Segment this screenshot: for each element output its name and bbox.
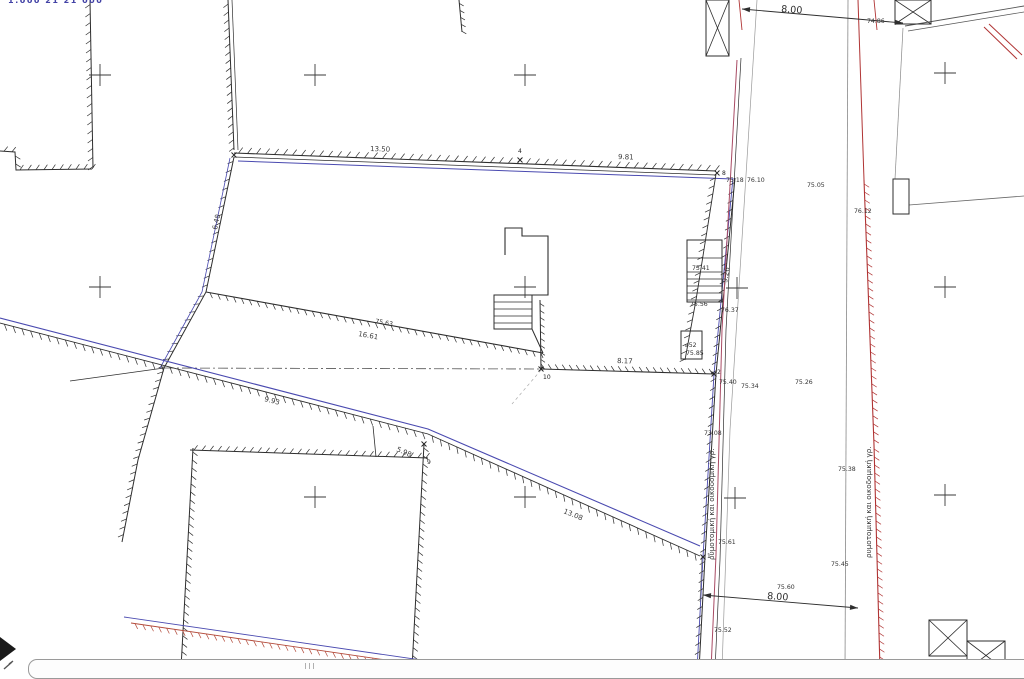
hatch-tick [354, 451, 358, 456]
hatch-tick [877, 561, 882, 564]
hatch-tick [868, 288, 873, 291]
hatch-tick [223, 4, 228, 8]
hatch-tick [222, 636, 225, 641]
hatch-tick [632, 367, 635, 372]
hatch-tick [598, 161, 602, 167]
hatch-tick [189, 516, 194, 520]
hatch-tick [877, 553, 882, 556]
hatch-tick [414, 640, 419, 644]
hatch-tick [540, 331, 544, 334]
hatch-tick [325, 651, 328, 656]
hatch-tick [621, 521, 622, 528]
roadside-structure [893, 179, 909, 214]
hatch-tick [695, 554, 696, 561]
hatch-tick [625, 162, 629, 168]
hatch-tick [715, 165, 719, 171]
hatch-tick [878, 585, 883, 588]
hatch-tick [159, 627, 162, 632]
hatch-tick [871, 368, 876, 371]
hatch-tick [457, 447, 458, 454]
hatch-tick [364, 152, 368, 158]
hatch-tick [877, 569, 882, 572]
hatch-tick [190, 500, 195, 504]
hatch-tick [867, 248, 872, 251]
hatch-tick [879, 617, 884, 620]
horizontal-scrollbar[interactable] [28, 659, 1024, 679]
hatch-tick [418, 453, 422, 458]
hatch-tick [490, 157, 494, 163]
hatch-tick [597, 366, 600, 371]
hatch-tick [870, 328, 875, 331]
elevation-label: 75.45 [831, 561, 849, 568]
dimension-label: 9.93 [264, 395, 281, 407]
hatch-tick [188, 532, 193, 536]
hatch-tick [314, 449, 318, 454]
hatch-tick [875, 465, 880, 468]
dimension-label: 13.50 [370, 145, 390, 154]
hatch-tick [175, 629, 178, 634]
hatch-tick [879, 641, 884, 644]
hatch-tick [87, 121, 92, 125]
hatch-tick [553, 159, 557, 165]
hatch-tick [400, 154, 404, 160]
hatch-tick [227, 84, 232, 88]
hatch-tick [535, 159, 539, 165]
hatch-tick [309, 649, 312, 654]
hatch-tick [872, 392, 877, 395]
hatch-tick [670, 164, 674, 170]
hatch-tick [607, 161, 611, 167]
east-parcel-line [909, 196, 1024, 205]
west-spur [70, 368, 164, 381]
road-width-label: 8.00 [781, 4, 803, 16]
hatch-tick [44, 165, 47, 170]
hatch-tick [386, 452, 390, 457]
hatch-tick [865, 200, 870, 203]
hatch-tick [876, 529, 881, 532]
hatch-tick [670, 543, 671, 550]
hatch-tick [421, 504, 426, 508]
hatch-tick [28, 165, 31, 170]
topleft-step-line-hatch [4, 147, 95, 170]
hatch-tick [86, 31, 91, 35]
hatch-tick [424, 448, 429, 452]
site-plan-drawing: 13.509.816.409.2616.618.179.935.9813.088… [0, 0, 1024, 670]
hatch-tick [270, 643, 273, 648]
grid-cross-icon [934, 62, 956, 84]
hatch-tick [508, 158, 512, 164]
hatch-tick [873, 408, 878, 411]
elevation-label: 75.60 [777, 584, 795, 591]
hatch-tick [877, 545, 882, 548]
hatch-tick [867, 256, 872, 259]
hatch-tick [333, 652, 336, 657]
hatch-tick [306, 449, 310, 454]
hatch-tick [370, 451, 374, 456]
scrollbar-grip[interactable] [305, 663, 306, 669]
hatch-tick [193, 452, 198, 456]
hatch-tick [562, 365, 565, 370]
hatch-tick [194, 445, 198, 450]
elevation-label: ⌀52 [685, 342, 697, 349]
hatch-tick [378, 452, 382, 457]
hatch-tick [422, 480, 427, 484]
survey-point-marker [715, 171, 720, 176]
hatch-tick [472, 156, 476, 162]
hatch-tick [418, 552, 423, 556]
hatch-tick [265, 149, 269, 155]
hatch-tick [185, 604, 190, 608]
lower-vert-line-a [181, 448, 193, 668]
hatch-tick [86, 40, 91, 44]
hatch-tick [572, 498, 573, 505]
street-name-label: ρυμοτομική και οικοδομική γρ. [707, 448, 716, 560]
hatch-tick [427, 155, 431, 161]
hatch-tick [224, 28, 229, 32]
hatch-tick [498, 465, 499, 472]
lower-vert-line-a-hatch [181, 452, 197, 670]
hatch-tick [189, 524, 194, 528]
hatch-tick [254, 641, 257, 646]
hatch-tick [317, 650, 320, 655]
hatch-tick [637, 528, 638, 535]
hatch-tick [878, 593, 883, 596]
hatch-tick [660, 368, 663, 373]
hatch-tick [229, 148, 234, 152]
hatch-tick [60, 164, 63, 169]
hatch-tick [182, 652, 187, 656]
elevation-label: 76.12 [854, 208, 872, 215]
south-diagonal-hatched [0, 323, 700, 556]
hatch-tick [876, 513, 881, 516]
hatch-tick [688, 368, 691, 373]
hatch-tick [246, 640, 249, 645]
hatch-tick [419, 544, 424, 548]
hatch-tick [667, 368, 670, 373]
hatch-tick [210, 446, 214, 451]
hatch-tick [679, 164, 683, 170]
hatch-tick [548, 364, 551, 369]
dash-dot-line [164, 368, 540, 369]
hatch-tick [866, 232, 871, 235]
hatch-tick [176, 335, 182, 336]
hatch-tick [228, 108, 233, 112]
hatch-tick [87, 103, 92, 107]
hatch-tick [874, 457, 879, 460]
top-right-red-2 [989, 24, 1022, 55]
hatch-tick [872, 384, 877, 387]
hatch-tick [869, 320, 874, 323]
elevation-label: 75.18 [726, 177, 744, 184]
street-name-label: ρυμοτομική και οικοδομική γρ. [864, 446, 873, 558]
hatch-tick [432, 436, 433, 443]
hatch-tick [290, 449, 294, 454]
hatch-tick [417, 568, 422, 572]
hatch-tick [346, 450, 350, 455]
hatch-tick [218, 446, 222, 451]
hatch-tick [283, 149, 287, 155]
hatch-tick [226, 60, 231, 64]
hatch-tick [87, 85, 92, 89]
hatch-tick [198, 633, 201, 638]
hatch-tick [341, 653, 344, 658]
hatch-tick [319, 151, 323, 157]
hatch-tick [224, 12, 229, 16]
dimension-label: 8.17 [617, 357, 633, 366]
hatch-tick [163, 359, 169, 360]
hatch-tick [172, 343, 178, 344]
hatch-tick [301, 150, 305, 156]
steep-west-boundary [122, 368, 164, 542]
hatch-tick [872, 400, 877, 403]
hatch-tick [589, 161, 593, 167]
hatch-tick [230, 637, 233, 642]
hatch-tick [541, 345, 545, 348]
hatch-tick [662, 539, 663, 546]
hatch-tick [322, 450, 326, 455]
hatch-tick [555, 364, 558, 369]
hatch-tick [191, 492, 196, 496]
hatch-tick [462, 31, 466, 33]
hatch-tick [879, 649, 884, 652]
hatch-tick [143, 625, 146, 630]
north-boundary-blue [238, 161, 733, 179]
grid-cross-icon [514, 64, 536, 86]
hatch-tick [654, 535, 655, 542]
hatch-tick [413, 648, 418, 652]
hatch-tick [481, 458, 482, 465]
hatch-tick [702, 369, 705, 374]
hatch-tick [867, 272, 872, 275]
hatch-tick [185, 320, 191, 321]
grid-cross-icon [89, 276, 111, 298]
hatch-tick [580, 502, 581, 509]
hatch-tick [865, 216, 870, 219]
hatch-tick [87, 76, 92, 80]
hatch-tick [20, 165, 23, 170]
hatch-tick [563, 495, 564, 502]
hatch-tick [588, 506, 589, 513]
hatch-tick [225, 44, 230, 48]
hatch-tick [226, 446, 230, 451]
hatch-tick [189, 312, 195, 313]
hatch-tick [540, 310, 544, 313]
elevation-label: 75.34 [741, 383, 759, 390]
hatch-tick [463, 156, 467, 162]
hatch-tick [422, 488, 427, 492]
hatch-tick [864, 192, 869, 195]
elevation-label: 74.86 [867, 18, 885, 25]
hatch-tick [191, 484, 196, 488]
elevation-label: 73.08 [704, 430, 722, 437]
grid-cross-icon [514, 486, 536, 508]
hatch-tick [228, 124, 233, 128]
hatch-tick [864, 184, 869, 187]
hatch-tick [282, 448, 286, 453]
hatch-tick [180, 327, 186, 328]
hatch-tick [541, 338, 545, 341]
hatch-tick [266, 448, 270, 453]
hatch-tick [12, 147, 16, 152]
hatch-tick [190, 508, 195, 512]
road-east-red-top [858, 0, 864, 180]
hatch-tick [874, 449, 879, 452]
hatch-tick [540, 317, 544, 320]
cursor-icon[interactable] [3, 660, 17, 670]
hatch-tick [678, 546, 679, 553]
hatch-tick [151, 626, 154, 631]
dimension-label: 13.08 [562, 507, 584, 522]
point-number: 8 [722, 170, 726, 177]
hatch-tick [86, 49, 91, 53]
top-right-corner-1 [905, 6, 1024, 26]
road-west-line2 [715, 58, 741, 670]
hatch-tick [420, 528, 425, 532]
hatch-tick [188, 540, 193, 544]
hatch-tick [871, 376, 876, 379]
hatch-tick [869, 312, 874, 315]
lower-vert-line-b [412, 444, 424, 668]
elevation-label: 75.52 [714, 627, 732, 634]
hatch-tick [499, 157, 503, 163]
hatch-tick [879, 633, 884, 636]
north-boundary-2 [234, 157, 716, 175]
elevation-label: 75.38 [838, 466, 856, 473]
hatch-tick [866, 240, 871, 243]
hatch-tick [555, 491, 556, 498]
hatch-tick [202, 446, 206, 451]
hatch-tick [234, 447, 238, 452]
hatch-tick [86, 67, 91, 71]
hatch-tick [426, 453, 430, 458]
hatch-tick [192, 460, 197, 464]
hatch-tick [625, 367, 628, 372]
elevation-label: 75.40 [719, 379, 737, 386]
hatch-tick [569, 365, 572, 370]
hatch-tick [681, 368, 684, 373]
south-diagonal-blue [0, 318, 700, 546]
elevation-label: 75.05 [807, 182, 825, 189]
dimension-label: 9.26 [721, 266, 732, 283]
hatch-tick [85, 4, 90, 8]
elevation-label: 75.61 [718, 539, 736, 546]
hatch-tick [87, 94, 92, 98]
dimension-arrowhead [742, 7, 750, 12]
hatch-tick [214, 635, 217, 640]
hatch-tick [186, 572, 191, 576]
hatch-tick [541, 359, 545, 362]
faint-dash-line [512, 370, 541, 404]
hatch-tick [868, 296, 873, 299]
hatch-tick [256, 148, 260, 154]
grid-cross-icon [934, 484, 956, 506]
hatch-tick [250, 447, 254, 452]
hatch-tick [695, 369, 698, 374]
grid-cross-icon [304, 64, 326, 86]
hatch-tick [238, 639, 241, 644]
point-number: 2 [717, 369, 721, 376]
hatch-tick [373, 153, 377, 159]
elevation-label: 75.63 [375, 318, 394, 328]
south-parcel-line-hatch [541, 364, 712, 374]
hatch-tick [596, 510, 597, 517]
dimension-label: 6.40 [211, 213, 222, 230]
topleft-vert-line [90, 0, 93, 168]
hatch-tick [16, 164, 21, 167]
hatch-tick [875, 481, 880, 484]
lower-cross-line [190, 450, 428, 458]
west-boundary-blue [160, 158, 230, 368]
grid-cross-icon [304, 486, 326, 508]
hatch-tick [611, 366, 614, 371]
hatch-tick [227, 100, 232, 104]
hatch-tick [875, 497, 880, 500]
hatch-tick [227, 92, 232, 96]
hatch-tick [876, 505, 881, 508]
hatch-tick [875, 473, 880, 476]
hatch-tick [15, 156, 20, 159]
hatch-tick [417, 576, 422, 580]
hatch-tick [562, 160, 566, 166]
hatch-tick [875, 489, 880, 492]
hatch-tick [229, 140, 234, 144]
hatch-tick [187, 564, 192, 568]
hatch-tick [4, 147, 8, 152]
hatch-tick [643, 163, 647, 169]
hatch-tick [613, 517, 614, 524]
hatch-tick [414, 632, 419, 636]
red-stub-dim [739, 0, 742, 30]
hatch-tick [590, 366, 593, 371]
hatch-tick [293, 647, 296, 652]
hatch-tick [184, 612, 189, 616]
hatch-tick [866, 224, 871, 227]
hatch-tick [688, 164, 692, 170]
hatch-tick [224, 20, 229, 24]
hatch-tick [362, 451, 366, 456]
center-building-outline [505, 228, 548, 295]
hatch-tick [646, 367, 649, 372]
hatch-tick [258, 447, 262, 452]
elevation-label: 75.41 [692, 265, 710, 272]
hatch-tick [226, 76, 231, 80]
hatch-tick [298, 449, 302, 454]
hatch-tick [355, 152, 359, 158]
hatch-tick [445, 155, 449, 161]
hatch-tick [616, 162, 620, 168]
grid-cross-icon [934, 276, 956, 298]
hatch-tick [328, 151, 332, 157]
hatch-tick [88, 139, 93, 143]
hatch-tick [190, 632, 193, 637]
hatch-tick [191, 476, 196, 480]
hatch-tick [544, 159, 548, 165]
dimension-arrowhead [703, 593, 711, 598]
north-boundary-hatch [238, 148, 719, 171]
hatch-tick [238, 148, 242, 154]
hatch-tick [436, 155, 440, 161]
hatch-tick [36, 165, 39, 170]
hatch-tick [423, 472, 428, 476]
hatch-tick [576, 365, 579, 370]
hatch-tick [416, 600, 421, 604]
hatch-tick [185, 596, 190, 600]
hatch-tick [187, 556, 192, 560]
hatch-tick [454, 156, 458, 162]
hatch-tick [646, 532, 647, 539]
hatch-tick [183, 636, 188, 640]
hatch-tick [414, 624, 419, 628]
